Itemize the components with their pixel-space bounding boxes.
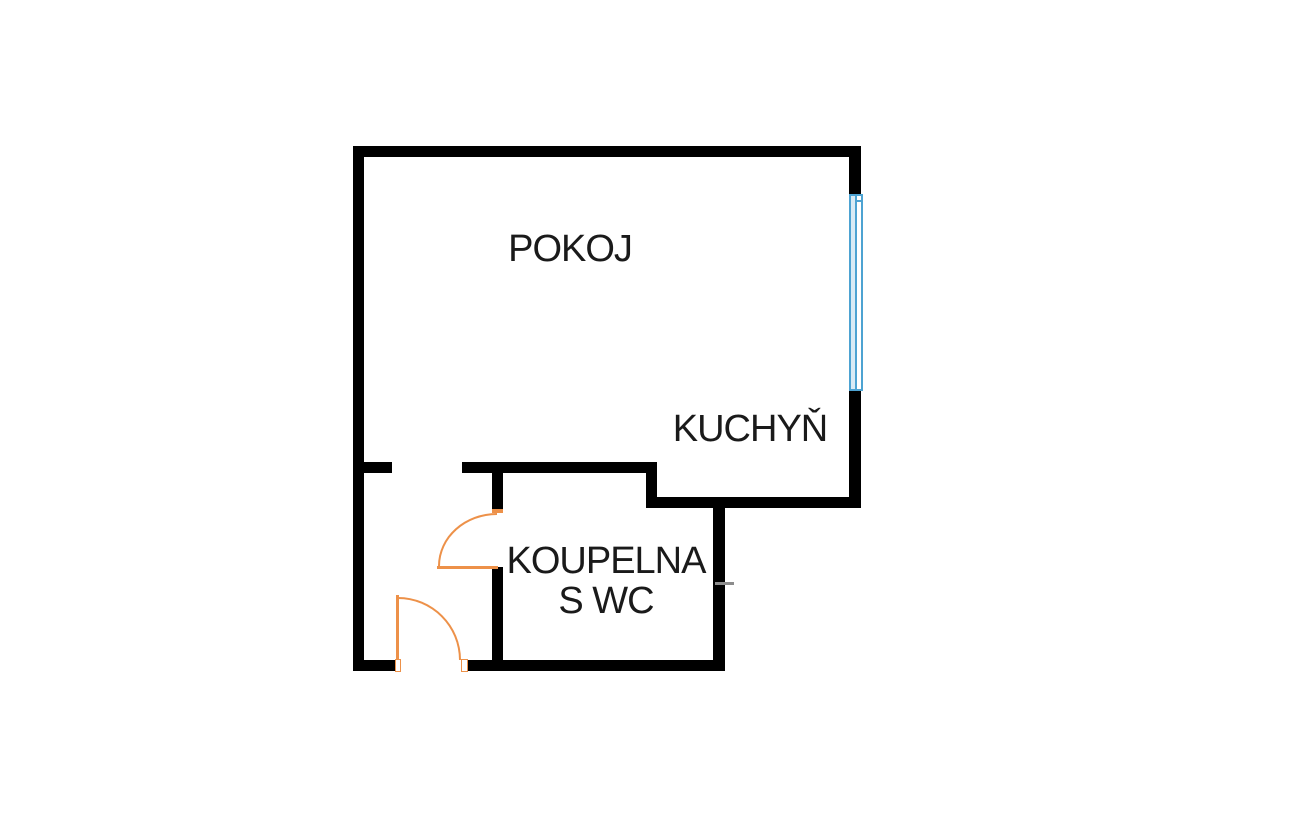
bathroom-door-swing-arc bbox=[438, 513, 497, 566]
bathroom-door-leaf bbox=[437, 566, 498, 569]
window bbox=[849, 194, 863, 391]
entrance-door-jamb-left bbox=[395, 659, 401, 672]
room-label-kuchyn: KUCHYŇ bbox=[673, 409, 827, 449]
wall-bathroom-left-lower bbox=[492, 567, 503, 671]
bathroom-door-jamb-tick bbox=[492, 509, 503, 513]
window-mullion bbox=[855, 196, 857, 389]
room-label-koupelna-line2: S WC bbox=[507, 581, 706, 621]
wall-bottom-left bbox=[353, 660, 398, 671]
bathroom-wall-fixture-tick bbox=[715, 582, 734, 585]
room-label-koupelna: KOUPELNA S WC bbox=[507, 541, 706, 621]
wall-kitchen-bottom bbox=[646, 497, 861, 508]
window-seal-tick bbox=[856, 200, 861, 202]
wall-right-above-window bbox=[849, 146, 861, 194]
entrance-door-swing-arc bbox=[398, 597, 461, 660]
wall-top bbox=[353, 146, 861, 157]
entrance-door-jamb-right bbox=[461, 659, 468, 672]
wall-right-below-window bbox=[849, 391, 861, 508]
wall-bathroom-left-upper bbox=[492, 462, 503, 512]
room-label-koupelna-line1: KOUPELNA bbox=[507, 541, 706, 581]
wall-left bbox=[353, 146, 364, 671]
page: { "title": "Studio apartment floor plan"… bbox=[0, 0, 1299, 818]
room-label-pokoj-text: POKOJ bbox=[508, 228, 632, 270]
wall-pokoj-bottom-stub bbox=[353, 462, 392, 473]
floor-plan: POKOJ KUCHYŇ KOUPELNA S WC bbox=[0, 0, 1299, 818]
room-label-kuchyn-text: KUCHYŇ bbox=[673, 408, 827, 450]
wall-bottom-right bbox=[464, 660, 725, 671]
room-label-pokoj: POKOJ bbox=[508, 229, 632, 269]
